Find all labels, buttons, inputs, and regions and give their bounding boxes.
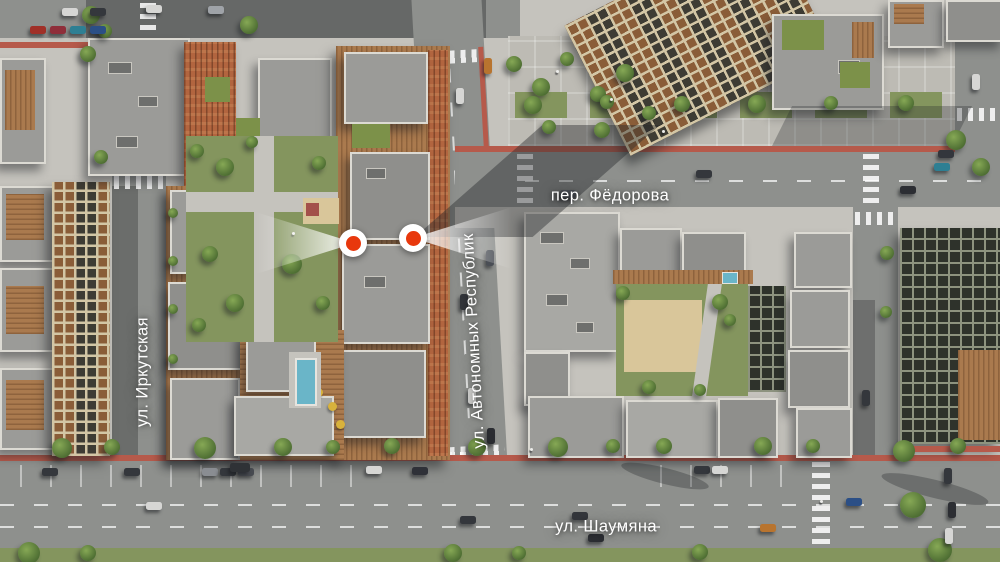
car (62, 8, 78, 16)
parking-ticks-west (20, 465, 380, 487)
tree (692, 544, 708, 560)
tree (642, 106, 656, 120)
viewpoint-marker-2-dot (406, 231, 421, 246)
car (230, 463, 250, 472)
tree (18, 542, 40, 562)
car (712, 466, 728, 474)
car (846, 498, 862, 506)
car (146, 5, 162, 13)
tree (893, 440, 915, 462)
tree (226, 294, 244, 312)
viewpoint-marker-2[interactable] (399, 224, 427, 252)
tree (712, 294, 728, 310)
tree (824, 96, 838, 110)
car (696, 170, 712, 178)
aerial-masterplan-render: ул. Иркутская ул. Автономных Республик п… (0, 0, 1000, 562)
street-label-irkutskaya: ул. Иркутская (134, 317, 153, 427)
car (948, 502, 956, 518)
car (412, 467, 428, 475)
tree (444, 544, 462, 562)
car (945, 528, 953, 544)
car (944, 468, 952, 484)
tree (94, 150, 108, 164)
tree (560, 52, 574, 66)
tree (656, 438, 672, 454)
tree (216, 158, 234, 176)
car (460, 516, 476, 524)
building-roof (340, 350, 426, 438)
roof-terrace (6, 194, 44, 240)
street-label-shaumyana: ул. Шаумяна (555, 518, 657, 537)
building-facade-inner-east (748, 286, 786, 392)
bike-lane-topleft (0, 42, 88, 48)
crosswalk-fedorova-east (863, 154, 879, 205)
car (70, 26, 86, 34)
tree (80, 46, 96, 62)
pedestrian (556, 70, 559, 73)
viewpoint-marker-1-dot (346, 236, 361, 251)
playground-right (624, 300, 702, 372)
car (900, 186, 916, 194)
tree (674, 96, 690, 112)
car (42, 468, 58, 476)
tree (506, 56, 522, 72)
building-roof (796, 408, 852, 458)
tree (274, 438, 292, 456)
tree (946, 130, 966, 150)
tree (524, 96, 542, 114)
tree (548, 437, 568, 457)
tree (642, 380, 656, 394)
pool (295, 358, 317, 406)
roof-terrace (894, 4, 924, 24)
tree (104, 439, 120, 455)
pedestrian (530, 448, 533, 451)
tree (724, 314, 736, 326)
roof-umbrella (336, 420, 345, 429)
car (30, 26, 46, 34)
building-roof (794, 232, 852, 288)
tree (880, 306, 892, 318)
building-facade-tower-left (52, 182, 110, 456)
tree (168, 304, 178, 314)
tree (950, 438, 966, 454)
street-right-shadow (853, 300, 875, 462)
building-facade-strip (428, 50, 448, 456)
tree (606, 439, 620, 453)
roof-terrace (5, 70, 35, 130)
building-roof (344, 52, 428, 124)
tree (880, 246, 894, 260)
green-roof (205, 77, 230, 102)
tree (754, 437, 772, 455)
street-label-fedorova: пер. Фёдорова (551, 187, 669, 206)
tree (52, 438, 72, 458)
roof-terrace (6, 286, 44, 334)
tree (900, 492, 926, 518)
tree (512, 546, 526, 560)
building-roof (788, 350, 850, 408)
tree (202, 246, 218, 262)
tree (616, 64, 634, 82)
roof-terrace (958, 350, 1000, 440)
tree (326, 440, 340, 454)
tree (694, 384, 706, 396)
tree (542, 120, 556, 134)
tree (972, 158, 990, 176)
car (862, 390, 870, 406)
building-shadow (772, 106, 972, 146)
car (208, 6, 224, 14)
crosswalk-right (855, 212, 897, 225)
car (366, 466, 382, 474)
tree (898, 95, 914, 111)
tree (594, 122, 610, 138)
building-roof (524, 212, 620, 352)
playground-mat (306, 203, 319, 216)
tree (194, 437, 216, 459)
car (938, 150, 954, 158)
building-roof (258, 58, 332, 140)
car (760, 524, 776, 532)
building-roof (946, 0, 1000, 42)
tree (312, 156, 326, 170)
roof-umbrella (328, 402, 337, 411)
tree (80, 545, 96, 561)
lane-divider (0, 526, 1000, 528)
tree (748, 95, 766, 113)
car (934, 163, 950, 171)
viewpoint-marker-1[interactable] (339, 229, 367, 257)
roof-pool (722, 272, 738, 284)
crosswalk-shaumyana (812, 462, 830, 547)
tree (384, 438, 400, 454)
tree (190, 144, 204, 158)
pedestrian (820, 500, 823, 503)
car (202, 468, 218, 476)
pedestrian (662, 130, 665, 133)
car (90, 8, 106, 16)
roof-terrace (852, 22, 874, 58)
tree (316, 296, 330, 310)
roof-terrace (6, 380, 44, 430)
tree (532, 78, 550, 96)
tree (806, 439, 820, 453)
tree (168, 354, 178, 364)
car (90, 26, 106, 34)
car (456, 88, 464, 104)
green-roof (352, 124, 390, 148)
green-roof (840, 62, 870, 88)
car (694, 466, 710, 474)
tree (616, 286, 630, 300)
car (50, 26, 66, 34)
building-roof (342, 244, 430, 344)
car (972, 74, 980, 90)
building-roof (626, 400, 718, 458)
pedestrian (610, 98, 613, 101)
car (146, 502, 162, 510)
building-roof (790, 290, 850, 348)
tree (240, 16, 258, 34)
green-roof (782, 20, 824, 50)
tree (168, 208, 178, 218)
tree (168, 256, 178, 266)
tree (246, 136, 258, 148)
grass-strip-bottom (0, 548, 1000, 562)
car (484, 58, 492, 74)
car (124, 468, 140, 476)
crosswalk-irkutskaya (114, 176, 164, 189)
tree (192, 318, 206, 332)
